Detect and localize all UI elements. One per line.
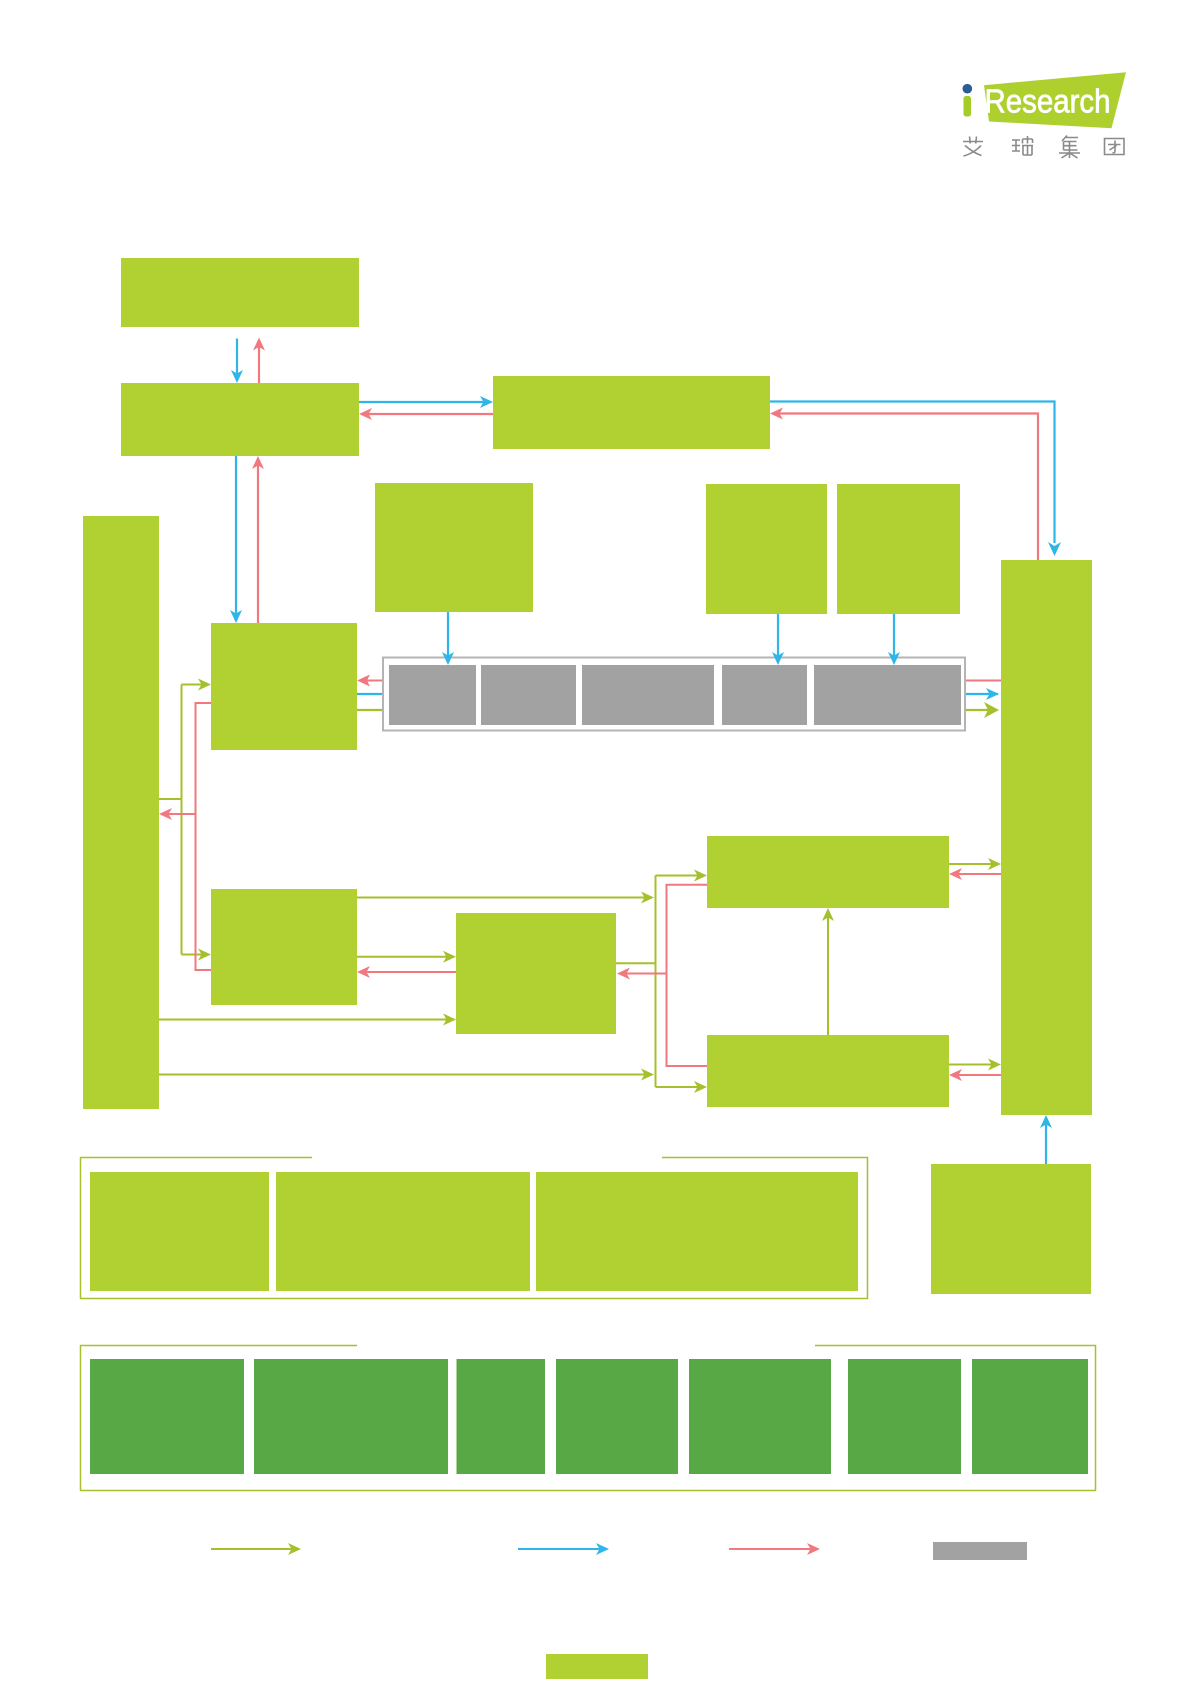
- svg-text:Research: Research: [985, 83, 1111, 120]
